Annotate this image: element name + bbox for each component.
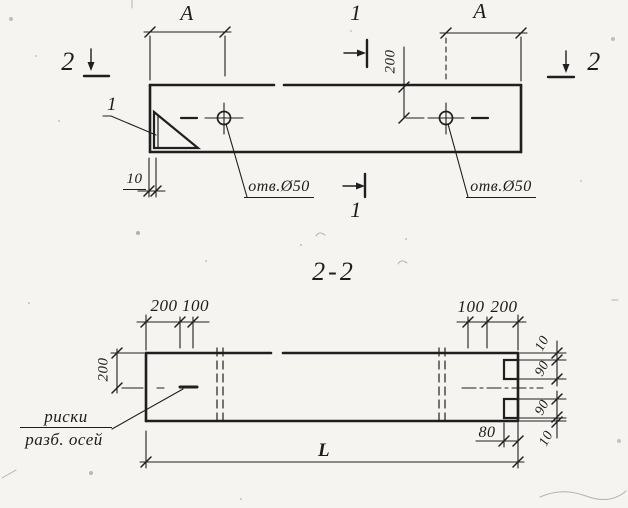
- section-mark-1-bottom-label: 1: [346, 199, 366, 221]
- hole-callout-right: отв.Ø50: [466, 179, 536, 198]
- dim-label-length-L: L: [313, 441, 335, 460]
- section-view-title: 2-2: [303, 259, 365, 285]
- dim-label-200-top-right: 200: [487, 298, 521, 315]
- dim-label-80-notch: 80: [474, 425, 500, 441]
- section-view-beam-outline: [146, 353, 518, 421]
- section-mark-2-right-label: 2: [581, 49, 607, 75]
- section-mark-1-top-label: 1: [346, 2, 366, 24]
- dim-label-a-right: A: [467, 1, 493, 22]
- dim-label-100-top-left: 100: [182, 297, 208, 314]
- dim-label-100-top-right: 100: [455, 298, 487, 315]
- drawing-sheet: A A 1 1 2 2 200 1 10 отв.Ø50 отв.Ø50 2-2…: [0, 0, 628, 508]
- dim-label-200-half-height: 200: [97, 350, 112, 390]
- dim-label-200-top-left: 200: [145, 297, 183, 314]
- notch-top: [504, 360, 518, 379]
- hole-callout-left: отв.Ø50: [244, 179, 314, 198]
- section-mark-2-left-label: 2: [55, 49, 81, 75]
- axis-marks-note-line1: риски: [20, 408, 112, 428]
- detail-callout-1-label: 1: [104, 95, 120, 114]
- dim-label-200-hole-offset: 200: [384, 42, 399, 82]
- dim-label-a-left: A: [174, 3, 200, 24]
- dim-label-10-plate: 10: [123, 172, 146, 190]
- axis-marks-note-line2: разб. осей: [12, 431, 116, 448]
- notch-bottom: [504, 399, 518, 418]
